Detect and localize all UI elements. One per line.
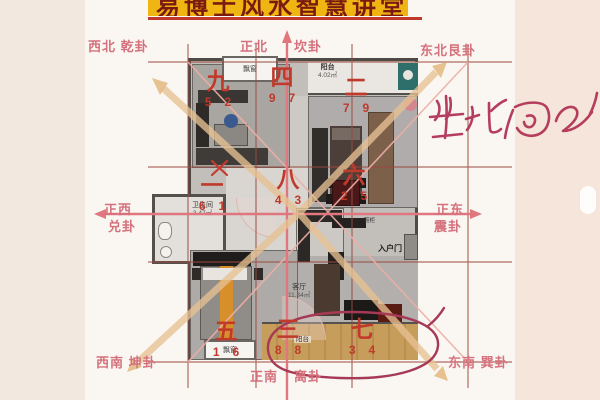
palace-southeast: 七 34 — [332, 318, 392, 357]
shoe-cabinet-label: 鞋柜 — [364, 218, 375, 224]
compass-label-west-bottom: 兑卦 — [108, 216, 136, 235]
palace-south: 三 88 — [258, 318, 318, 357]
mountain-star: 1 — [213, 345, 220, 359]
compass-label-east-bottom: 震卦 — [434, 216, 462, 235]
compass-label-south-right: 离卦 — [294, 366, 322, 385]
toilet — [158, 222, 172, 240]
palace-numeral: 二 — [326, 76, 386, 99]
compass-label-southeast: 东南 巽卦 — [448, 352, 509, 371]
balcony-top-label: 阳台 — [318, 64, 337, 72]
lecture-title-banner: 易博士风水智慧讲堂 — [148, 0, 408, 16]
water-star: 7 — [289, 91, 296, 105]
pink-chair — [404, 98, 417, 111]
washing-machine-door — [403, 70, 413, 80]
palace-east: 六 25 — [324, 164, 384, 203]
bg-left-strip — [0, 0, 85, 400]
title-underline — [148, 17, 422, 20]
lecture-title: 易博士风水智慧讲堂 — [156, 0, 408, 16]
fengshui-lecture-slide: 易博士风水智慧讲堂 西北 乾卦 正北 坎卦 东北艮卦 正西 兑卦 正东 震卦 西… — [0, 0, 600, 400]
mountain-star: 3 — [349, 343, 356, 357]
water-star: 3 — [295, 193, 302, 207]
living-room-label: 客厅 — [288, 284, 310, 292]
bed-pillow — [332, 128, 360, 140]
water-star: 8 — [295, 343, 302, 357]
palace-numeral: 一 — [182, 174, 242, 197]
tall-cabinet — [196, 103, 209, 147]
edge-handle[interactable] — [580, 186, 596, 214]
rug — [196, 148, 268, 165]
nightstand — [254, 268, 263, 280]
palace-southwest: 五 16 — [196, 320, 256, 359]
palace-west: 一 61 — [182, 174, 242, 213]
water-star: 2 — [225, 95, 232, 109]
compass-label-north-left: 正北 — [240, 36, 268, 55]
mountain-star: 9 — [269, 91, 276, 105]
palace-north: 四 97 — [252, 66, 312, 105]
compass-label-southwest: 西南 坤卦 — [96, 352, 157, 371]
water-star: 9 — [363, 101, 370, 115]
sink — [160, 246, 172, 258]
palace-northwest: 九 52 — [188, 70, 248, 109]
kitchen-label: 厨房 — [299, 226, 307, 240]
palace-northeast: 二 79 — [326, 76, 386, 115]
mountain-star: 7 — [343, 101, 350, 115]
bed-pillows — [203, 268, 247, 280]
palace-numeral: 九 — [188, 70, 248, 93]
palace-numeral: 三 — [258, 318, 318, 341]
living-room-area: 11.34㎡ — [288, 292, 310, 299]
palace-numeral: 八 — [258, 168, 318, 191]
palace-center: 八 43 — [258, 168, 318, 207]
palace-numeral: 四 — [252, 66, 312, 89]
mountain-star: 2 — [341, 189, 348, 203]
water-star: 4 — [369, 343, 376, 357]
compass-label-south-left: 正南 — [250, 366, 278, 385]
shoe-cabinet — [332, 218, 366, 228]
entry-door-label: 入户门 — [378, 244, 402, 253]
palace-numeral: 六 — [324, 164, 384, 187]
mountain-star: 8 — [275, 343, 282, 357]
water-star: 6 — [233, 345, 240, 359]
compass-label-northeast: 东北艮卦 — [420, 40, 476, 59]
mountain-star: 4 — [275, 193, 282, 207]
palace-numeral: 七 — [332, 318, 392, 341]
palace-numeral: 五 — [196, 320, 256, 343]
nightstand — [192, 268, 201, 280]
sofa — [314, 264, 340, 316]
mountain-star: 5 — [205, 95, 212, 109]
compass-label-northwest: 西北 乾卦 — [88, 36, 149, 55]
water-star: 1 — [219, 199, 226, 213]
water-star: 5 — [361, 189, 368, 203]
mountain-star: 6 — [199, 199, 206, 213]
headboard — [193, 252, 251, 266]
compass-label-north-right: 坎卦 — [294, 36, 322, 55]
office-chair — [224, 114, 238, 128]
entry-door-panel — [404, 234, 418, 260]
